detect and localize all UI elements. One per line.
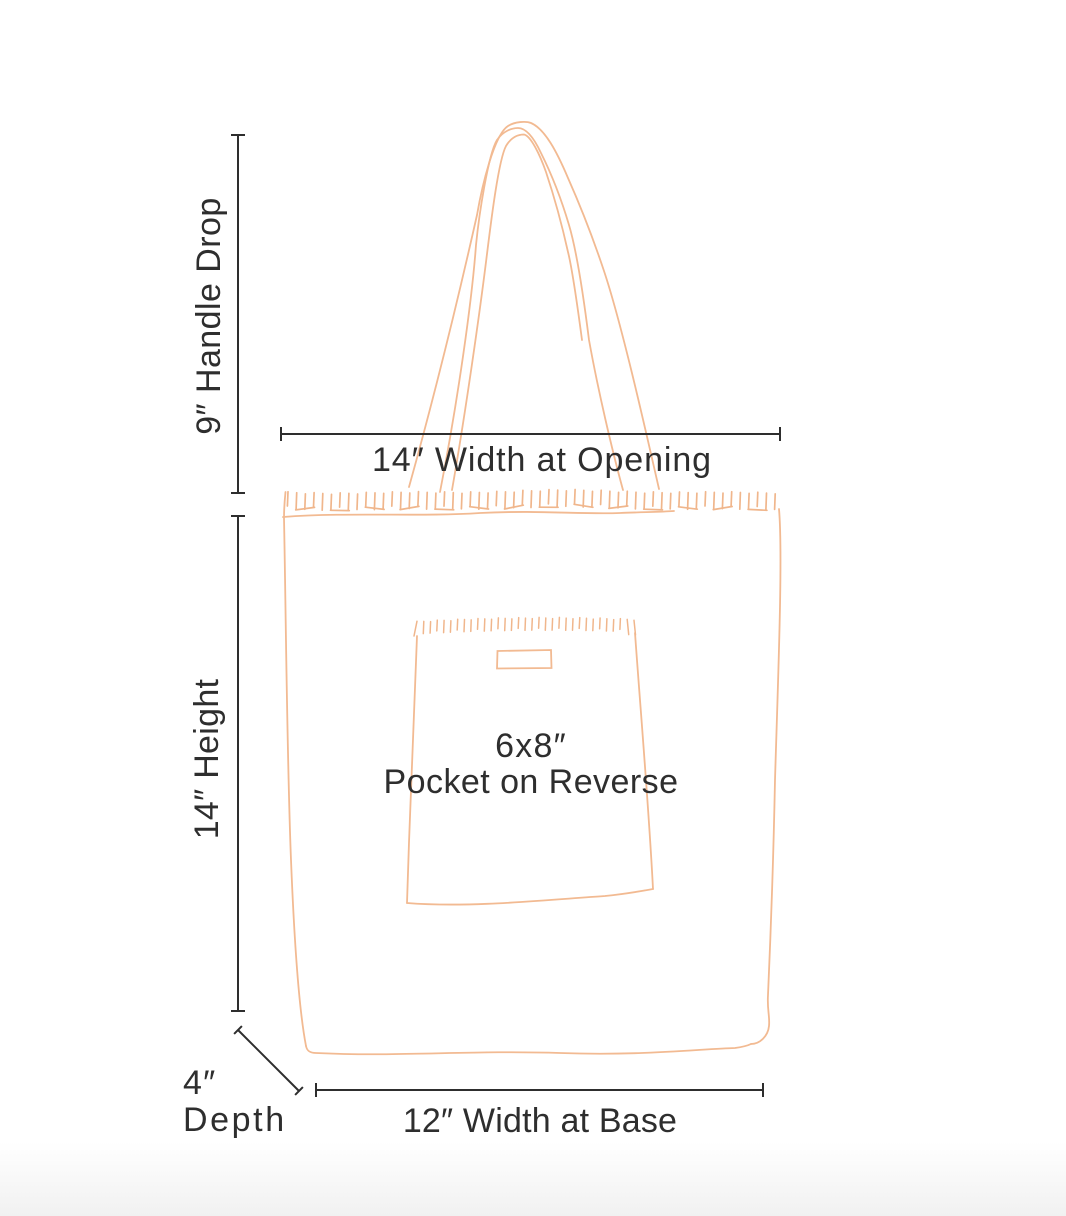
svg-text:6x8″: 6x8″ [495, 727, 567, 765]
svg-text:4″: 4″ [183, 1064, 216, 1102]
svg-text:14″ Width at Opening: 14″ Width at Opening [372, 441, 712, 479]
svg-text:9″ Handle Drop: 9″ Handle Drop [190, 197, 228, 435]
svg-text:14″ Height: 14″ Height [188, 678, 226, 839]
svg-text:Depth: Depth [183, 1101, 287, 1139]
svg-text:12″ Width at Base: 12″ Width at Base [403, 1102, 677, 1140]
svg-text:Pocket on Reverse: Pocket on Reverse [384, 763, 679, 801]
